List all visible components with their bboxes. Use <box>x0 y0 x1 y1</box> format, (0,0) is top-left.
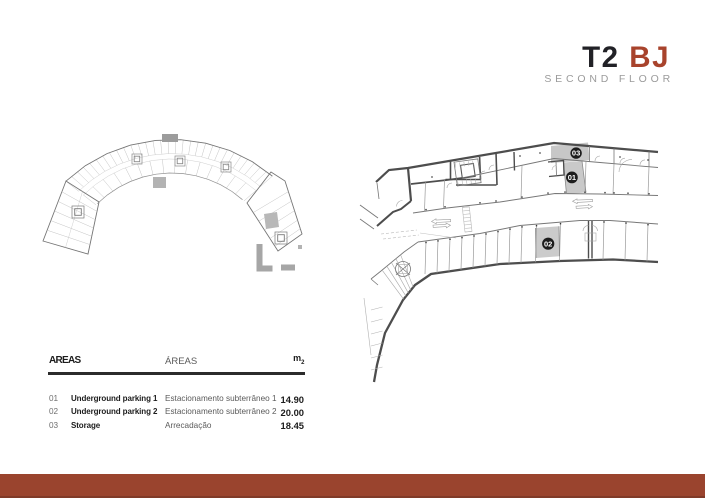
svg-text:03: 03 <box>572 149 580 158</box>
svg-text:02: 02 <box>544 239 552 248</box>
svg-text:01: 01 <box>568 173 576 182</box>
